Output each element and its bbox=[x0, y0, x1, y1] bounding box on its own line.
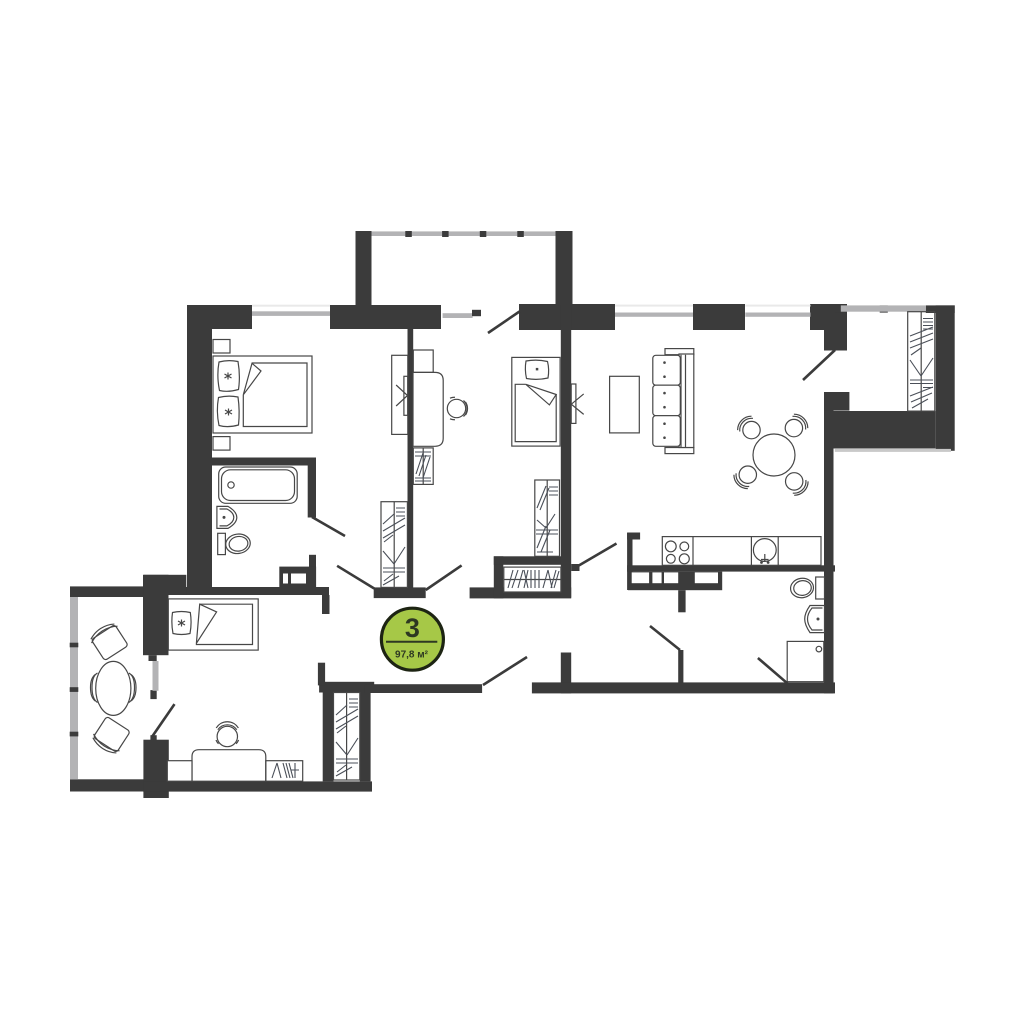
svg-text:97,8 м²: 97,8 м² bbox=[395, 650, 429, 661]
svg-text:3: 3 bbox=[405, 613, 420, 643]
